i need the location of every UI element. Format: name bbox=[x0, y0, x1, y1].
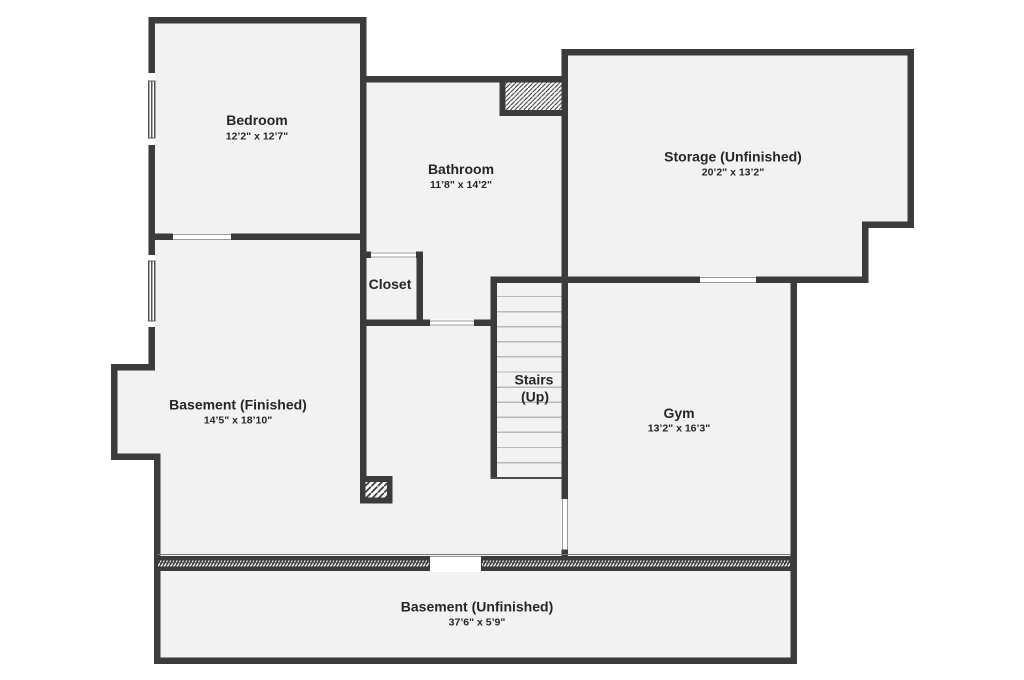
svg-text:14’5" x 18’10": 14’5" x 18’10" bbox=[204, 415, 272, 427]
svg-text:Closet: Closet bbox=[369, 276, 412, 292]
svg-text:Basement (Finished): Basement (Finished) bbox=[169, 397, 307, 413]
svg-text:Bathroom: Bathroom bbox=[428, 161, 494, 177]
svg-text:12’2" x 12’7": 12’2" x 12’7" bbox=[226, 131, 289, 143]
svg-text:Gym: Gym bbox=[663, 405, 694, 421]
svg-text:Basement (Unfinished): Basement (Unfinished) bbox=[401, 599, 553, 615]
svg-text:Stairs: Stairs bbox=[515, 372, 554, 388]
svg-text:20’2" x 13’2": 20’2" x 13’2" bbox=[702, 167, 765, 179]
svg-text:11’8" x 14’2": 11’8" x 14’2" bbox=[430, 179, 492, 191]
svg-text:(Up): (Up) bbox=[521, 389, 549, 405]
svg-text:Storage (Unfinished): Storage (Unfinished) bbox=[664, 149, 802, 165]
svg-text:13’2" x 16’3": 13’2" x 16’3" bbox=[648, 423, 711, 435]
svg-text:Bedroom: Bedroom bbox=[226, 112, 287, 128]
svg-text:37’6" x 5’9": 37’6" x 5’9" bbox=[449, 617, 506, 629]
